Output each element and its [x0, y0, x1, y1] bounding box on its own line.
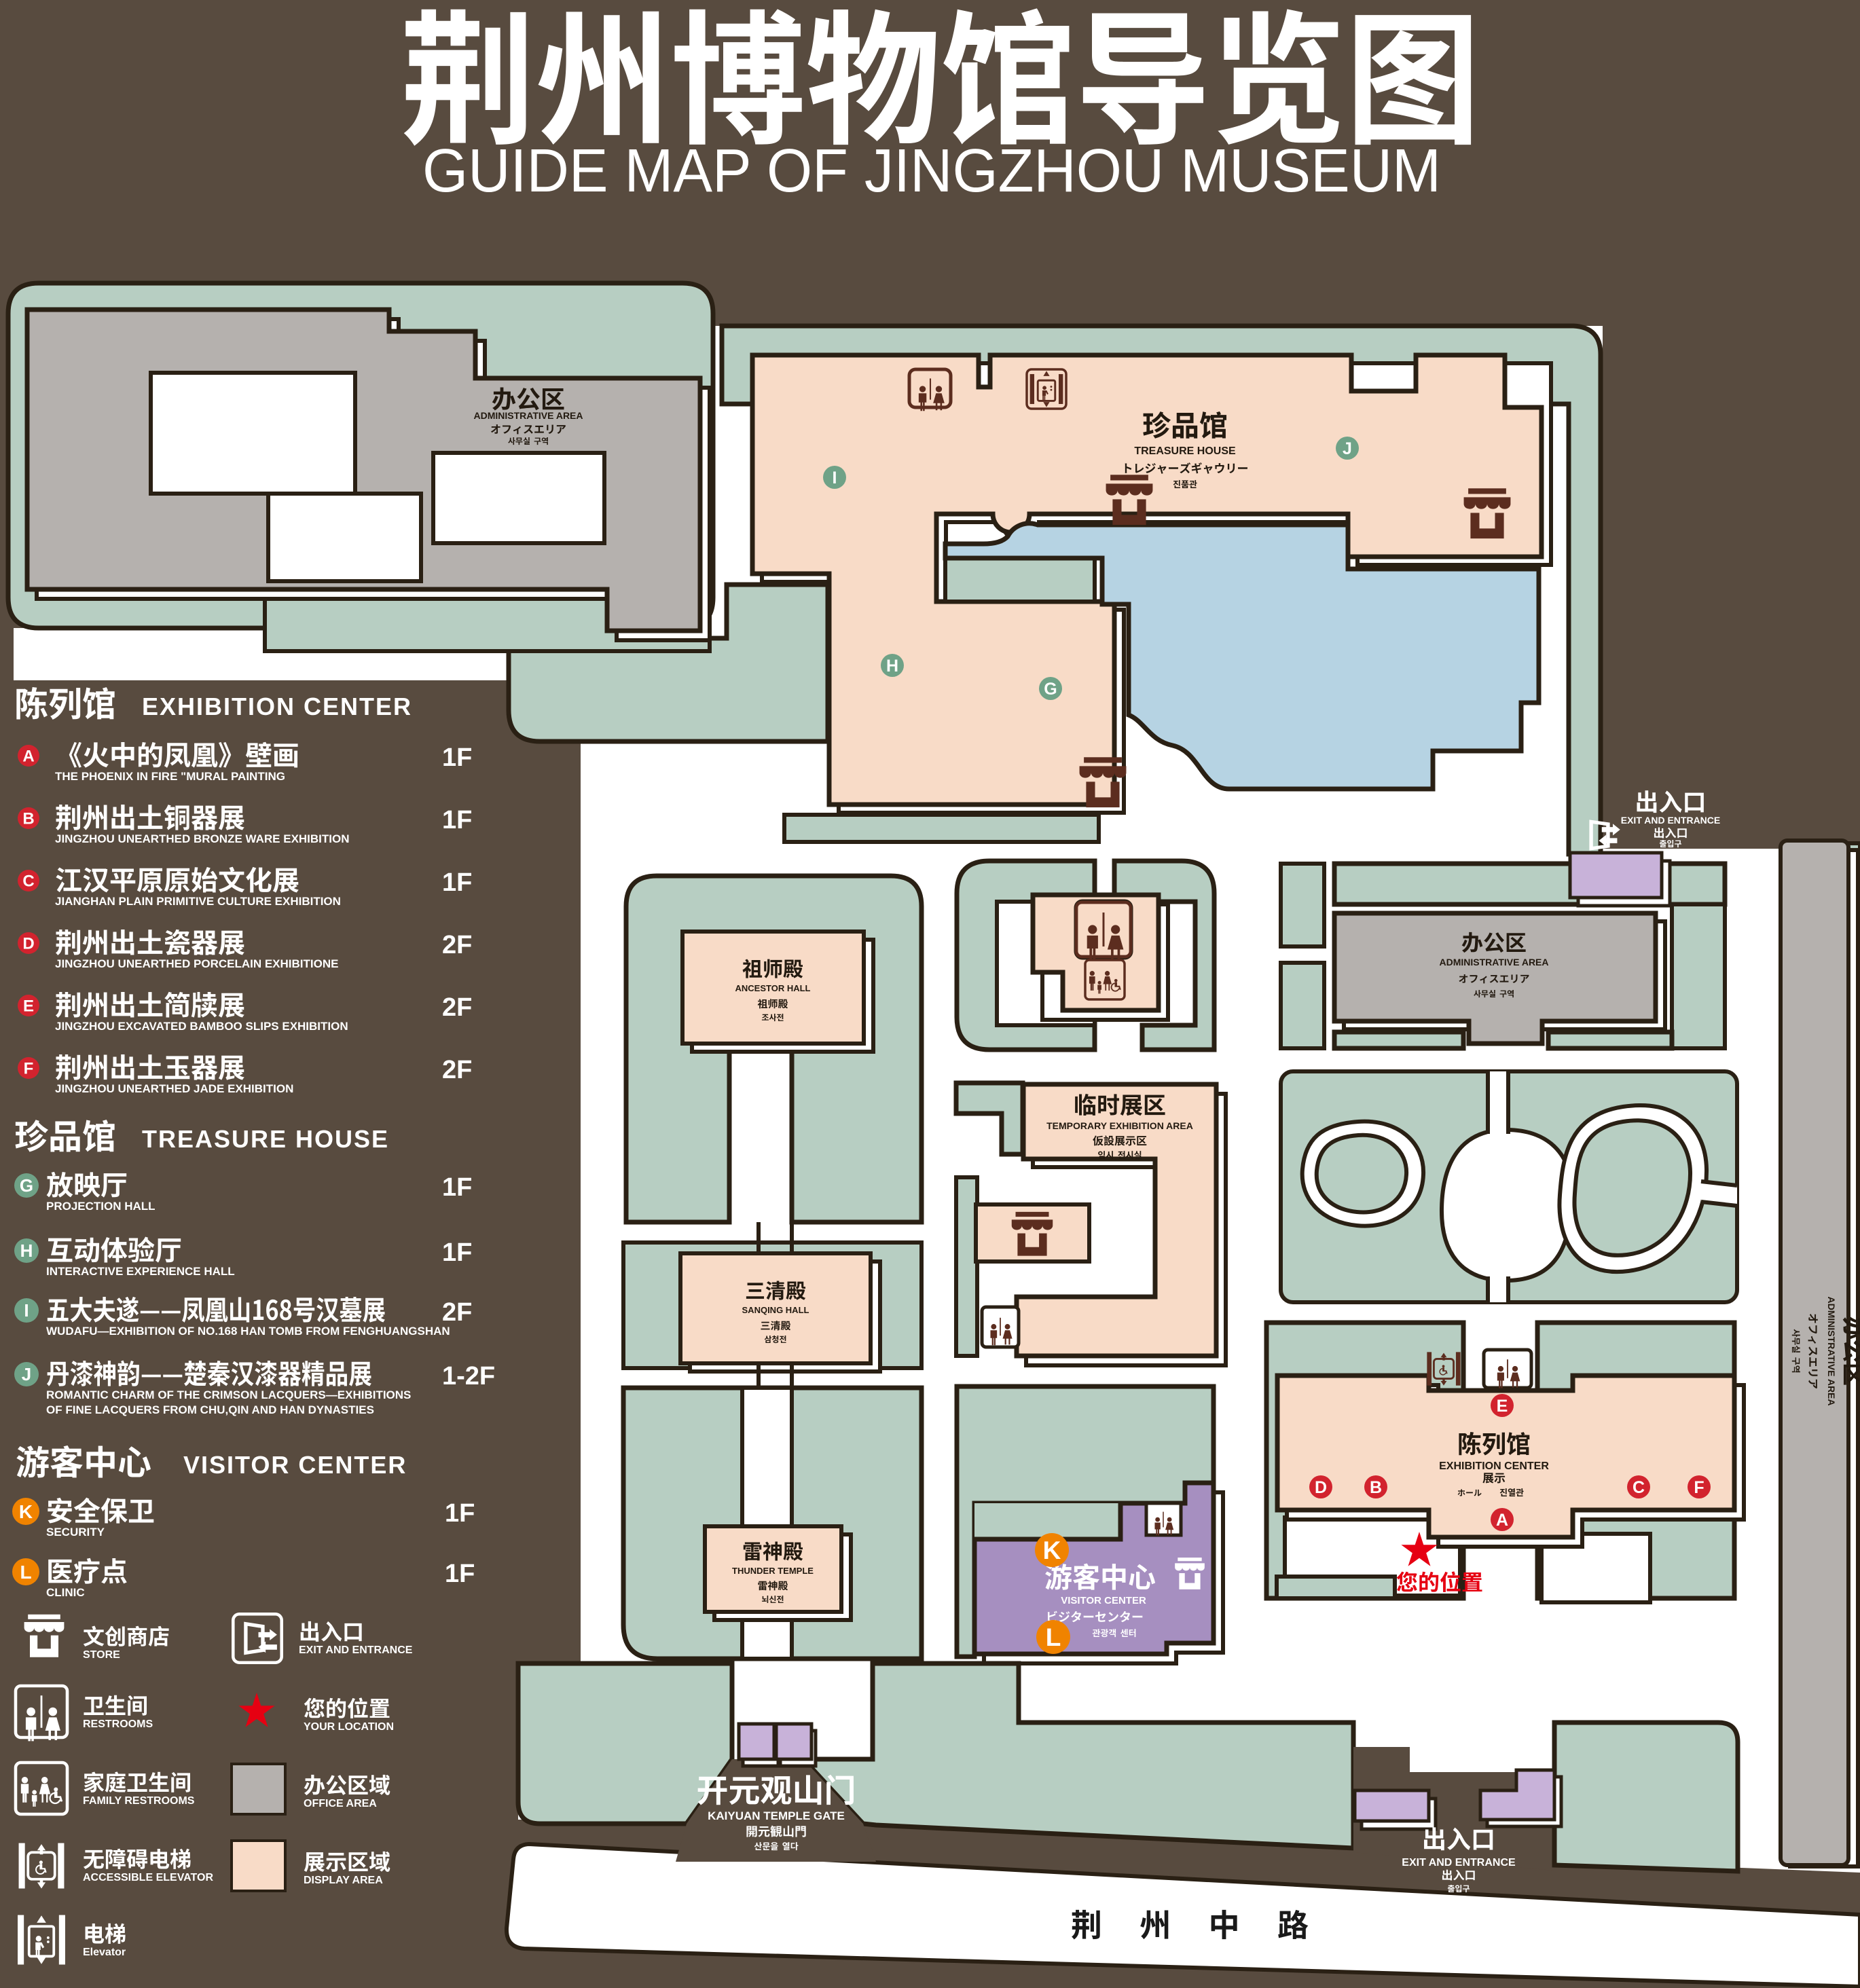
svg-text:JINGZHOU UNEARTHED PORCELAIN E: JINGZHOU UNEARTHED PORCELAIN EXHIBITIONE: [55, 957, 338, 970]
svg-text:1F: 1F: [442, 1238, 472, 1267]
svg-text:Elevator: Elevator: [83, 1947, 126, 1958]
svg-text:SANQING HALL: SANQING HALL: [742, 1305, 809, 1315]
svg-text:SECURITY: SECURITY: [46, 1526, 105, 1539]
svg-text:G: G: [1044, 680, 1057, 699]
svg-text:INTERACTIVE EXPERIENCE HALL: INTERACTIVE EXPERIENCE HALL: [46, 1265, 235, 1278]
svg-text:YOUR LOCATION: YOUR LOCATION: [304, 1721, 394, 1733]
svg-text:2F: 2F: [442, 931, 472, 959]
svg-text:WUDAFU—EXHIBITION OF NO.168 HA: WUDAFU—EXHIBITION OF NO.168 HAN TOMB FRO…: [46, 1325, 450, 1338]
svg-text:H: H: [886, 657, 898, 676]
svg-text:KAIYUAN TEMPLE GATE: KAIYUAN TEMPLE GATE: [708, 1809, 845, 1822]
svg-text:GUIDE MAP OF JINGZHOU MUSEUM: GUIDE MAP OF JINGZHOU MUSEUM: [422, 137, 1441, 205]
svg-text:D: D: [22, 934, 34, 953]
svg-text:2F: 2F: [442, 1056, 472, 1084]
svg-text:EXHIBITION CENTER: EXHIBITION CENTER: [142, 693, 412, 720]
svg-text:A: A: [1496, 1511, 1508, 1530]
svg-text:K: K: [19, 1501, 33, 1522]
svg-text:E: E: [1497, 1397, 1508, 1416]
svg-text:ACCESSIBLE ELEVATOR: ACCESSIBLE ELEVATOR: [83, 1872, 213, 1883]
svg-text:D: D: [1315, 1478, 1327, 1497]
svg-text:JINGZHOU UNEARTHED BRONZE WARE: JINGZHOU UNEARTHED BRONZE WARE EXHIBITIO…: [55, 832, 350, 845]
svg-text:VISITOR CENTER: VISITOR CENTER: [183, 1451, 407, 1479]
svg-text:H: H: [20, 1240, 33, 1261]
svg-text:EXIT AND ENTRANCE: EXIT AND ENTRANCE: [299, 1644, 413, 1656]
svg-text:ANCESTOR HALL: ANCESTOR HALL: [735, 983, 811, 993]
svg-text:EXIT AND ENTRANCE: EXIT AND ENTRANCE: [1621, 815, 1721, 826]
svg-text:ADMINISTRATIVE AREA: ADMINISTRATIVE AREA: [1826, 1297, 1837, 1406]
svg-text:RESTROOMS: RESTROOMS: [83, 1718, 153, 1730]
svg-text:B: B: [22, 809, 34, 828]
svg-text:1-2F: 1-2F: [442, 1362, 495, 1391]
svg-text:2F: 2F: [442, 1298, 472, 1327]
svg-text:DISPLAY AREA: DISPLAY AREA: [304, 1875, 383, 1886]
svg-text:F: F: [24, 1059, 34, 1078]
svg-text:C: C: [1633, 1478, 1645, 1497]
svg-text:1F: 1F: [442, 868, 472, 897]
svg-text:CLINIC: CLINIC: [46, 1586, 85, 1599]
svg-text:VISITOR CENTER: VISITOR CENTER: [1061, 1595, 1146, 1606]
svg-text:PROJECTION HALL: PROJECTION HALL: [46, 1200, 156, 1213]
svg-text:F: F: [1694, 1478, 1704, 1497]
svg-text:1F: 1F: [445, 1560, 475, 1588]
svg-text:TREASURE HOUSE: TREASURE HOUSE: [1134, 445, 1236, 457]
svg-text:K: K: [1043, 1536, 1061, 1564]
svg-text:EXIT AND ENTRANCE: EXIT AND ENTRANCE: [1402, 1857, 1516, 1869]
svg-text:OFFICE AREA: OFFICE AREA: [304, 1798, 377, 1809]
svg-text:C: C: [22, 872, 34, 890]
svg-text:I: I: [833, 468, 837, 487]
svg-text:THUNDER TEMPLE: THUNDER TEMPLE: [732, 1566, 814, 1576]
svg-text:TEMPORARY EXHIBITION AREA: TEMPORARY EXHIBITION AREA: [1046, 1120, 1193, 1131]
svg-text:L: L: [20, 1562, 31, 1583]
svg-text:JIANGHAN PLAIN PRIMITIVE CULTU: JIANGHAN PLAIN PRIMITIVE CULTURE EXHIBIT…: [55, 895, 341, 908]
svg-text:2F: 2F: [442, 993, 472, 1022]
svg-text:G: G: [20, 1175, 33, 1196]
svg-text:L: L: [1046, 1623, 1061, 1651]
svg-text:1F: 1F: [442, 806, 472, 834]
svg-text:EXHIBITION CENTER: EXHIBITION CENTER: [1439, 1460, 1549, 1472]
svg-text:OF FINE LACQUERS FROM CHU,QIN: OF FINE LACQUERS FROM CHU,QIN AND HAN DY…: [46, 1403, 374, 1416]
svg-text:B: B: [1370, 1478, 1382, 1497]
svg-text:THE PHOENIX IN FIRE "MURAL PAI: THE PHOENIX IN FIRE "MURAL PAINTING: [55, 770, 285, 783]
svg-text:1F: 1F: [445, 1499, 475, 1528]
svg-text:J: J: [1343, 439, 1352, 458]
svg-text:I: I: [24, 1300, 29, 1321]
svg-text:TREASURE HOUSE: TREASURE HOUSE: [142, 1125, 389, 1153]
svg-text:ADMINISTRATIVE AREA: ADMINISTRATIVE AREA: [474, 410, 583, 421]
svg-text:1F: 1F: [442, 1173, 472, 1202]
svg-text:JINGZHOU EXCAVATED BAMBOO SLIP: JINGZHOU EXCAVATED BAMBOO SLIPS EXHIBITI…: [55, 1020, 348, 1033]
svg-text:E: E: [23, 997, 34, 1015]
svg-text:FAMILY RESTROOMS: FAMILY RESTROOMS: [83, 1795, 195, 1807]
svg-text:A: A: [22, 747, 34, 765]
svg-text:STORE: STORE: [83, 1649, 120, 1661]
svg-text:ROMANTIC CHARM OF THE CRIMSON: ROMANTIC CHARM OF THE CRIMSON LACQUERS—E…: [46, 1388, 411, 1401]
svg-text:J: J: [22, 1364, 31, 1384]
svg-text:1F: 1F: [442, 743, 472, 772]
svg-text:ADMINISTRATIVE AREA: ADMINISTRATIVE AREA: [1440, 957, 1549, 968]
svg-text:JINGZHOU UNEARTHED JADE EXHIBI: JINGZHOU UNEARTHED JADE EXHIBITION: [55, 1082, 293, 1095]
